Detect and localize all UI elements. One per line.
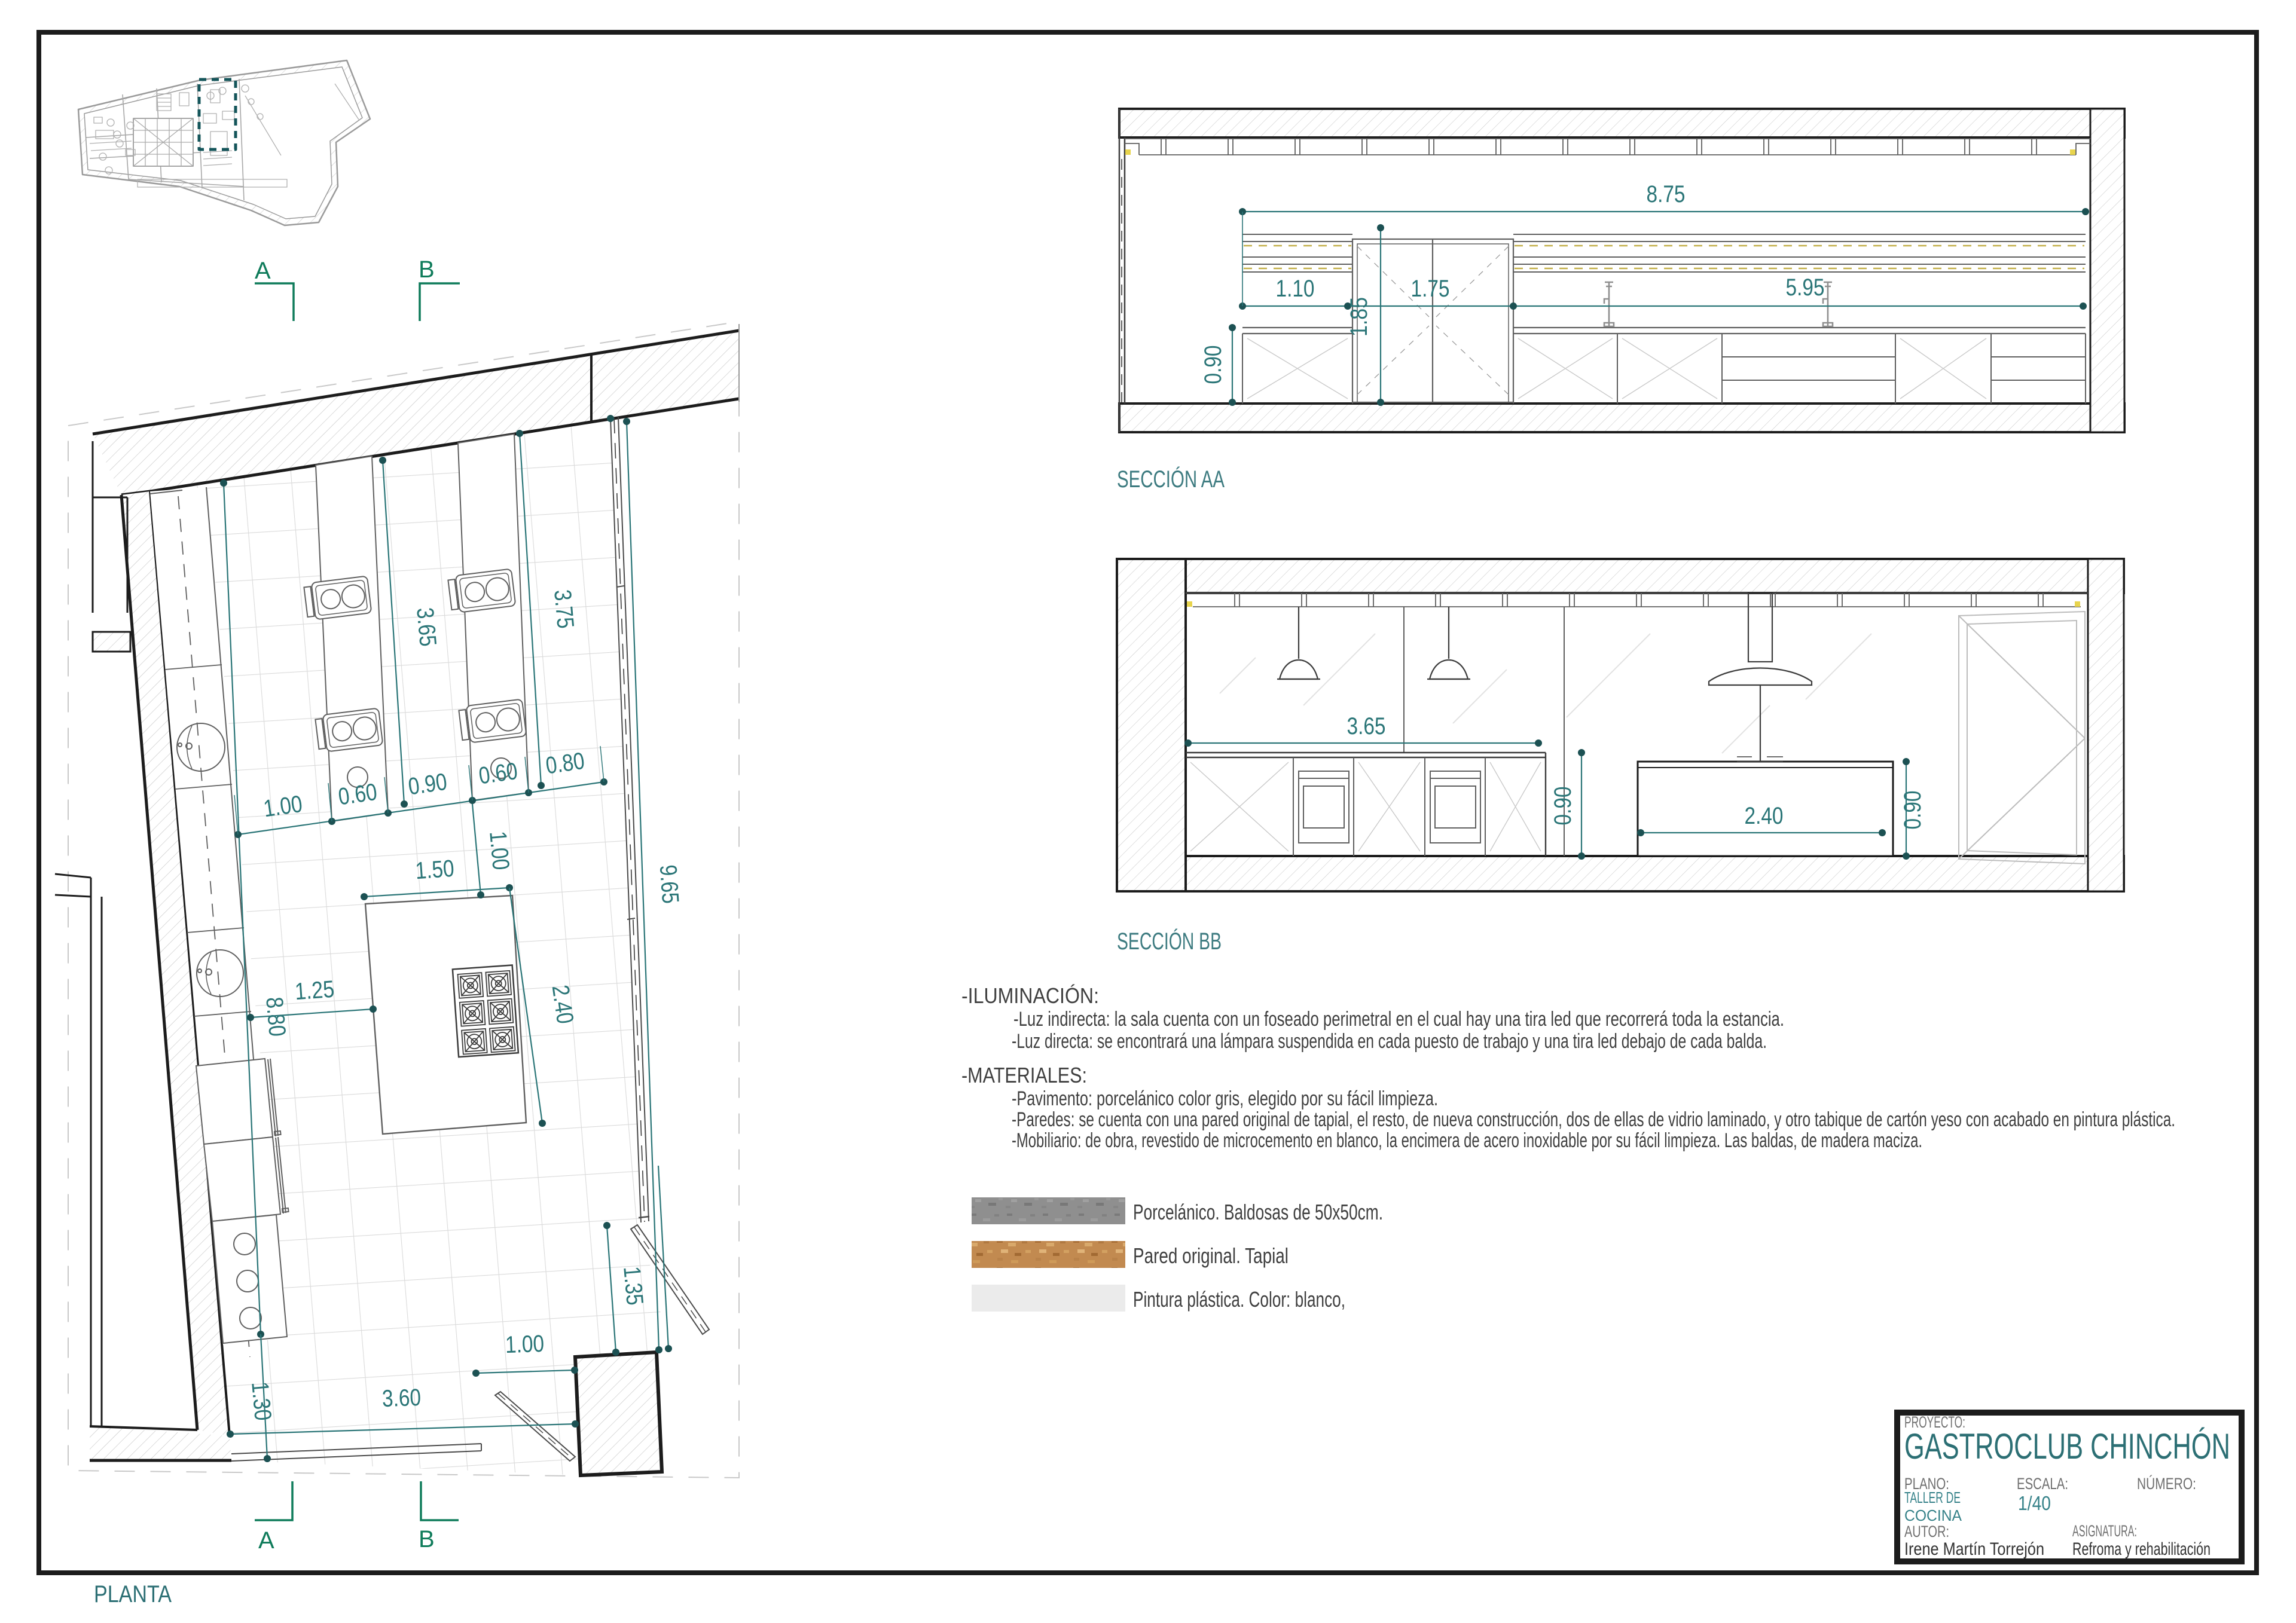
svg-text:B: B: [419, 256, 435, 283]
svg-text:1.75: 1.75: [1411, 276, 1450, 302]
svg-text:SECCIÓN BB: SECCIÓN BB: [1117, 928, 1222, 955]
svg-text:AUTOR:: AUTOR:: [1904, 1523, 1949, 1541]
svg-text:-Pavimento: porcelánico color: -Pavimento: porcelánico color gris, eleg…: [1012, 1087, 1438, 1110]
svg-text:-Paredes: se cuenta con una pa: -Paredes: se cuenta con una pared origin…: [1012, 1108, 2175, 1131]
svg-text:COCINA: COCINA: [1904, 1506, 1962, 1524]
svg-text:9.65: 9.65: [655, 864, 683, 904]
svg-text:1.10: 1.10: [1276, 276, 1315, 302]
svg-text:-ILUMINACIÓN:: -ILUMINACIÓN:: [961, 983, 1099, 1008]
svg-text:3.60: 3.60: [381, 1384, 421, 1412]
svg-text:TALLER DE: TALLER DE: [1904, 1488, 1961, 1506]
svg-text:Pared original. Tapial: Pared original. Tapial: [1133, 1243, 1289, 1268]
svg-text:0.90: 0.90: [1900, 791, 1926, 830]
svg-text:GASTROCLUB CHINCHÓN: GASTROCLUB CHINCHÓN: [1904, 1426, 2230, 1466]
svg-text:1.00: 1.00: [484, 830, 514, 872]
svg-text:Porcelánico. Baldosas de 50x50: Porcelánico. Baldosas de 50x50cm.: [1133, 1200, 1383, 1224]
svg-text:2.40: 2.40: [1745, 803, 1784, 829]
svg-text:ESCALA:: ESCALA:: [2017, 1475, 2068, 1493]
svg-text:1.35: 1.35: [618, 1266, 648, 1307]
svg-text:Refroma y rehabilitación: Refroma y rehabilitación: [2072, 1539, 2210, 1559]
svg-text:8.75: 8.75: [1647, 181, 1686, 207]
svg-text:3.75: 3.75: [549, 589, 578, 630]
svg-text:0.90: 0.90: [1200, 346, 1226, 384]
svg-text:ASIGNATURA:: ASIGNATURA:: [2072, 1522, 2137, 1540]
svg-text:1.00: 1.00: [505, 1331, 544, 1358]
svg-text:1.00: 1.00: [262, 791, 304, 823]
svg-text:SECCIÓN AA: SECCIÓN AA: [1117, 466, 1225, 493]
svg-text:A: A: [255, 258, 271, 284]
svg-text:5.95: 5.95: [1786, 274, 1825, 301]
svg-text:-Luz directa: se encontrará un: -Luz directa: se encontrará una lámpara …: [1012, 1030, 1767, 1053]
svg-text:0.90: 0.90: [407, 769, 448, 800]
svg-text:-Mobiliario: de obra, revestid: -Mobiliario: de obra, revestido de micro…: [1012, 1129, 1922, 1152]
svg-text:1.50: 1.50: [414, 855, 455, 884]
svg-text:3.65: 3.65: [1347, 713, 1386, 739]
svg-text:0.60: 0.60: [477, 758, 519, 790]
svg-text:1.85: 1.85: [1346, 297, 1372, 337]
svg-text:Irene Martín Torrejón: Irene Martín Torrejón: [1904, 1539, 2044, 1559]
svg-text:A: A: [258, 1527, 274, 1554]
svg-text:0.90: 0.90: [1550, 787, 1576, 826]
svg-text:Pintura plástica. Color: blanc: Pintura plástica. Color: blanco,: [1133, 1287, 1345, 1312]
svg-text:-Luz indirecta: la sala cuenta: -Luz indirecta: la sala cuenta con un fo…: [1013, 1008, 1784, 1031]
svg-text:1.25: 1.25: [294, 976, 335, 1005]
svg-text:B: B: [419, 1526, 435, 1552]
svg-text:NÚMERO:: NÚMERO:: [2137, 1474, 2196, 1493]
svg-text:0.80: 0.80: [544, 748, 586, 780]
svg-text:PLANTA: PLANTA: [94, 1581, 172, 1607]
svg-text:2.40: 2.40: [547, 983, 579, 1025]
svg-text:1.30: 1.30: [246, 1381, 276, 1422]
svg-text:0.60: 0.60: [337, 779, 378, 811]
svg-text:3.65: 3.65: [411, 607, 441, 648]
svg-text:1/40: 1/40: [2018, 1492, 2051, 1514]
svg-text:-MATERIALES:: -MATERIALES:: [961, 1063, 1087, 1087]
